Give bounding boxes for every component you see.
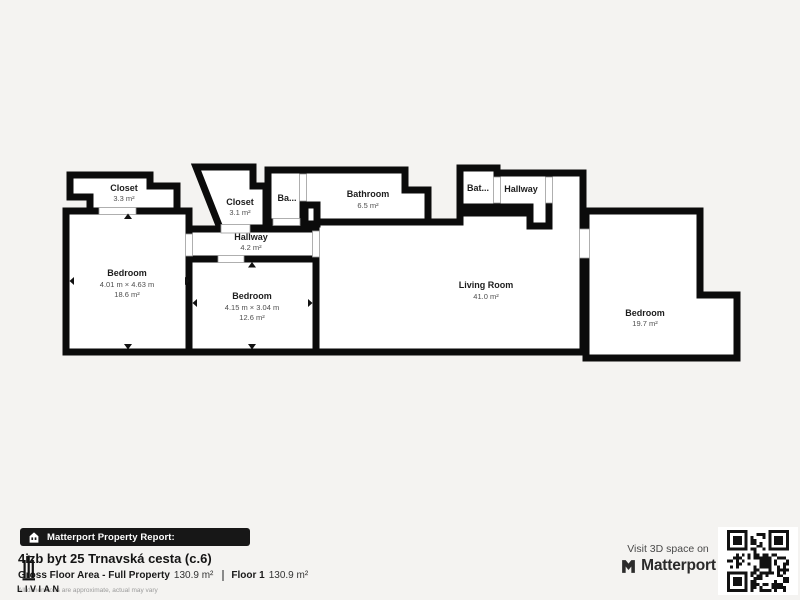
- room-closet-1: [70, 175, 177, 211]
- duct-shaft: [305, 205, 317, 224]
- door-opening: [273, 219, 300, 226]
- livian-logo-icon: [22, 555, 36, 582]
- room-name: Ba...: [277, 193, 296, 203]
- door-opening: [494, 177, 501, 203]
- room-name: Bathroom: [347, 189, 390, 199]
- room-name: Living Room: [459, 280, 514, 290]
- room-name: Hallway: [504, 184, 538, 194]
- floor-area-stats: Gross Floor Area - Full Property 130.9 m…: [18, 570, 314, 581]
- room-bedroom-3: [586, 211, 737, 358]
- gross-floor-area-label: Gross Floor Area - Full Property: [18, 570, 170, 581]
- house-icon: [28, 531, 40, 544]
- livian-watermark: LIVIAN: [17, 584, 62, 594]
- door-opening: [218, 256, 244, 263]
- visit-3d-cta: Visit 3D space on Matterport: [612, 543, 724, 575]
- qr-code: [718, 527, 798, 595]
- room-area: 6.5 m²: [357, 201, 379, 210]
- floor-value: 130.9 m²: [269, 570, 308, 581]
- door-opening: [300, 174, 307, 201]
- matterport-logo-icon: [620, 558, 637, 575]
- room-area: 3.1 m²: [229, 208, 251, 217]
- matterport-brand-text: Matterport: [641, 557, 716, 575]
- room-area: 41.0 m²: [473, 292, 499, 301]
- visit-3d-text: Visit 3D space on: [612, 543, 724, 555]
- room-name: Closet: [110, 183, 138, 193]
- gross-floor-area-value: 130.9 m²: [174, 570, 213, 581]
- door-opening: [186, 234, 193, 256]
- room-area: 4.2 m²: [240, 243, 262, 252]
- stats-divider: [222, 570, 224, 581]
- door-opening: [546, 177, 553, 203]
- room-area: 12.6 m²: [239, 313, 265, 322]
- property-title: 4izb byt 25 Trnavská cesta (c.6): [18, 551, 212, 566]
- room-area: 18.6 m²: [114, 290, 140, 299]
- door-opening: [99, 208, 136, 215]
- floor-plan: Closet 3.3 m² Closet 3.1 m² Ba... Bathro…: [0, 0, 800, 600]
- room-dims: 4.01 m × 4.63 m: [100, 280, 154, 289]
- room-area: 19.7 m²: [632, 319, 658, 328]
- room-name: Closet: [226, 197, 254, 207]
- room-dims: 4.15 m × 3.04 m: [225, 303, 279, 312]
- door-opening: [313, 231, 320, 257]
- floor-label: Floor 1: [231, 570, 264, 581]
- room-name: Hallway: [234, 232, 268, 242]
- room-name: Bedroom: [232, 291, 272, 301]
- door-opening: [580, 229, 590, 258]
- qr-code-graphic: [727, 530, 789, 592]
- room-area: 3.3 m²: [113, 194, 135, 203]
- report-header-bar: Matterport Property Report:: [20, 528, 250, 546]
- room-name: Bat...: [467, 183, 489, 193]
- room-name: Bedroom: [625, 308, 665, 318]
- room-name: Bedroom: [107, 268, 147, 278]
- matterport-floor-plan-report: Closet 3.3 m² Closet 3.1 m² Ba... Bathro…: [0, 0, 800, 600]
- report-bar-label: Matterport Property Report:: [47, 532, 175, 543]
